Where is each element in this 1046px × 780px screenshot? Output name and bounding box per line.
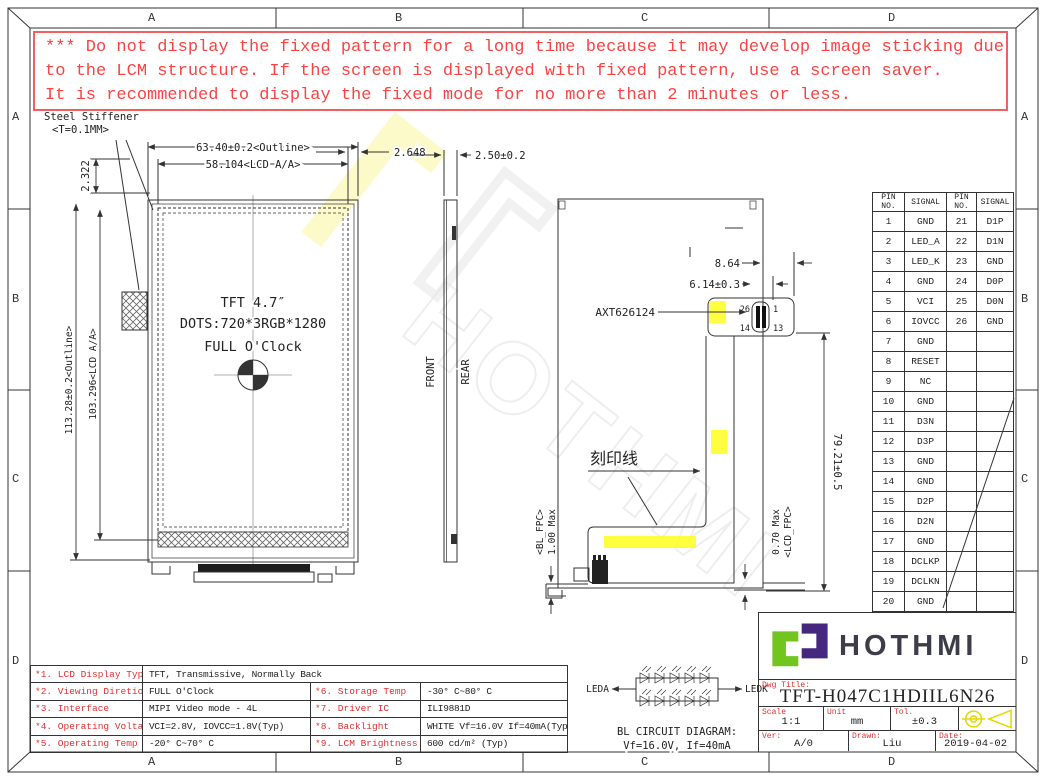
signal-cell: [977, 392, 1014, 412]
pin-no-cell: 15: [873, 492, 905, 512]
led-icon: [685, 666, 696, 683]
grid-label-col-top: A: [148, 11, 155, 25]
signal-cell: [977, 552, 1014, 572]
front-side-label: FRONT: [425, 356, 437, 388]
bl-caption-2: Vf=16.0V, If=40mA: [623, 740, 731, 752]
title-block: HOTHMI Dwg Title: TFT-H047C1HDIIL6N26 Sc…: [758, 612, 1016, 752]
led-icon: [700, 666, 711, 683]
signal-cell: LED_K: [905, 252, 947, 272]
fpc-highlight-mid: [711, 430, 727, 454]
pin-no-cell: 22: [947, 232, 977, 252]
pin-no-cell: 26: [947, 312, 977, 332]
signal-cell: IOVCC: [905, 312, 947, 332]
dim-border-width: 2.648: [394, 147, 426, 159]
scale-row: Scale 1:1 Unit mm Tol. ±0.3: [759, 706, 1016, 730]
spec-value: MIPI Video mode - 4L: [143, 701, 311, 718]
pin-table-header: PIN NO. SIGNAL PIN NO. SIGNAL: [873, 193, 1014, 212]
signal-cell: D1P: [977, 212, 1014, 232]
pin-26-label: 26: [740, 305, 750, 315]
spec-value: WHITE Vf=16.0V If=40mA(Typ): [421, 718, 568, 735]
pin-13-label: 13: [773, 324, 783, 334]
grid-label-row-left: D: [12, 654, 19, 668]
hothmi-logo-icon: [769, 620, 831, 672]
datasheet-page: HOTHMI Steel Stiffener <T=0.1MM> TFT 4: [0, 0, 1046, 780]
spec-row: *2. Viewing DiretionFULL O'Clock*6. Stor…: [31, 683, 568, 700]
pin-table-row: 10GND: [873, 392, 1014, 412]
warning-line: It is recommended to display the fixed m…: [45, 84, 1006, 108]
drawn-label: Drawn:: [852, 732, 881, 741]
bl-caption-1: BL CIRCUIT DIAGRAM:: [617, 726, 737, 738]
pin-table-row: 6IOVCC26GND: [873, 312, 1014, 332]
signal-cell: D2P: [905, 492, 947, 512]
panel-size-text: TFT 4.7″: [220, 295, 285, 311]
led-icon: [655, 689, 666, 706]
pin-table-row: 17GND: [873, 532, 1014, 552]
signal-cell: [977, 452, 1014, 472]
pin-no-cell: 11: [873, 412, 905, 432]
pin-table-row: 9NC: [873, 372, 1014, 392]
signal-cell: GND: [905, 532, 947, 552]
spec-row: *4. Operating VoltageVCI=2.8V, IOVCC=1.8…: [31, 718, 568, 735]
pin-assignment-table: PIN NO. SIGNAL PIN NO. SIGNAL 1GND21D1P2…: [872, 192, 1014, 612]
spec-table: *1. LCD Display TypeTFT, Transmissive, N…: [30, 665, 568, 753]
pin-no-cell: [947, 512, 977, 532]
led-icon: [700, 689, 711, 706]
tolerance-cell: Tol. ±0.3: [891, 707, 959, 730]
grid-label-row-right: C: [1021, 472, 1028, 486]
pin-table-row: 3LED_K23GND: [873, 252, 1014, 272]
pin-14-label: 14: [740, 324, 750, 334]
signal-cell: GND: [905, 472, 947, 492]
signal-header: SIGNAL: [905, 193, 947, 212]
pin-no-cell: 7: [873, 332, 905, 352]
pin-no-cell: [947, 392, 977, 412]
signal-cell: [977, 492, 1014, 512]
pin-table-row: 7GND: [873, 332, 1014, 352]
signal-cell: DCLKP: [905, 552, 947, 572]
bl-fpc-thickness: 1.00 Max: [547, 509, 558, 555]
dim-outline-height: 113.28±0.2<Outline>: [64, 325, 75, 434]
connector-part-number: AXT626124: [595, 306, 655, 319]
spec-value: -20° C~70° C: [143, 736, 311, 753]
signal-cell: GND: [977, 252, 1014, 272]
pin-no-cell: [947, 552, 977, 572]
spec-label: *6. Storage Temp: [311, 683, 421, 700]
spec-value: VCI=2.8V, IOVCC=1.8V(Typ): [143, 718, 311, 735]
signal-cell: D1N: [977, 232, 1014, 252]
signal-cell: D2N: [905, 512, 947, 532]
signal-cell: [977, 412, 1014, 432]
pin-no-cell: [947, 352, 977, 372]
signal-cell: D0P: [977, 272, 1014, 292]
date-label: Date:: [939, 732, 963, 741]
led-icon: [685, 689, 696, 706]
pin-no-cell: [947, 572, 977, 592]
pin-no-cell: 12: [873, 432, 905, 452]
stiffener-label: Steel Stiffener: [44, 111, 139, 123]
bl-fpc-label: <BL_FPC>: [535, 509, 546, 555]
grid-label-row-left: A: [12, 110, 19, 124]
pin-no-cell: 3: [873, 252, 905, 272]
signal-cell: DCLKN: [905, 572, 947, 592]
spec-value: FULL O'Clock: [143, 683, 311, 700]
pin-no-cell: 13: [873, 452, 905, 472]
pin-table-row: 13GND: [873, 452, 1014, 472]
signal-cell: GND: [977, 312, 1014, 332]
dim-fpc-length: 79.21±0.5: [831, 434, 843, 491]
pin-no-cell: 1: [873, 212, 905, 232]
pin-no-header: PIN NO.: [947, 193, 977, 212]
pin-no-cell: 23: [947, 252, 977, 272]
signal-cell: [977, 352, 1014, 372]
panel-dots-text: DOTS:720*3RGB*1280: [180, 316, 326, 332]
pin-table-row: 19DCLKN: [873, 572, 1014, 592]
spec-label: *9. LCM Brightness: [311, 736, 421, 753]
dim-active-width: 58.104<LCD A/A>: [206, 159, 301, 171]
pin-table-row: 4GND24D0P: [873, 272, 1014, 292]
unit-label: Unit: [827, 708, 846, 717]
stiffener-thickness: <T=0.1MM>: [52, 124, 109, 136]
signal-cell: [977, 592, 1014, 612]
grid-label-col-top: B: [395, 11, 402, 25]
pin-no-cell: 2: [873, 232, 905, 252]
dim-active-height: 103.296<LCD A/A>: [88, 328, 99, 420]
pin-no-header: PIN NO.: [873, 193, 905, 212]
projection-symbol-icon: [961, 708, 1013, 730]
tolerance-label: Tol.: [894, 708, 913, 717]
unit-cell: Unit mm: [824, 707, 891, 730]
projection-cell: [959, 707, 1014, 730]
brand-name: HOTHMI: [839, 630, 977, 663]
pin-no-cell: [947, 432, 977, 452]
led-icon: [670, 689, 681, 706]
pin-no-cell: 5: [873, 292, 905, 312]
spec-label: *3. Interface: [31, 701, 143, 718]
scale-cell: Scale 1:1: [759, 707, 824, 730]
pin-no-cell: [947, 592, 977, 612]
warning-line: *** Do not display the fixed pattern for…: [45, 36, 1006, 60]
spec-value: ILI9881D: [421, 701, 568, 718]
pin-no-cell: 18: [873, 552, 905, 572]
pin-table-row: 12D3P: [873, 432, 1014, 452]
pin-no-cell: 14: [873, 472, 905, 492]
version-cell: Ver: A/0: [759, 731, 849, 751]
grid-label-row-left: B: [12, 292, 19, 306]
grid-label-row-left: C: [12, 472, 19, 486]
signal-cell: VCI: [905, 292, 947, 312]
led-icon: [640, 666, 651, 683]
spec-label: *1. LCD Display Type: [31, 666, 143, 683]
scale-label: Scale: [762, 708, 786, 717]
drawing-title-row: Dwg Title: TFT-H047C1HDIIL6N26: [759, 679, 1016, 706]
lcd-fpc-thickness: 0.70 Max: [771, 509, 782, 555]
spec-row: *5. Operating Temp-20° C~70° C*9. LCM Br…: [31, 736, 568, 753]
signal-cell: GND: [905, 452, 947, 472]
grid-label-col-bottom: D: [888, 755, 895, 769]
pin-table-row: 2LED_A22D1N: [873, 232, 1014, 252]
steel-stiffener: [122, 292, 147, 330]
fpc-highlight-band: [604, 536, 696, 548]
grid-label-col-top: C: [641, 11, 648, 25]
signal-cell: GND: [905, 392, 947, 412]
signal-cell: [977, 372, 1014, 392]
date-cell: Date: 2019-04-02: [936, 731, 1015, 751]
signal-cell: [977, 512, 1014, 532]
led-icon: [655, 666, 666, 683]
spec-label: *8. Backlight: [311, 718, 421, 735]
pin-table-row: 5VCI25D0N: [873, 292, 1014, 312]
grid-label-row-right: B: [1021, 292, 1028, 306]
pin-no-cell: 8: [873, 352, 905, 372]
version-label: Ver:: [762, 732, 781, 741]
pin-no-cell: 17: [873, 532, 905, 552]
grid-label-col-bottom: B: [395, 755, 402, 769]
grid-label-col-bottom: A: [148, 755, 155, 769]
pin-no-cell: [947, 372, 977, 392]
pin-table-row: 14GND: [873, 472, 1014, 492]
pin-no-cell: [947, 452, 977, 472]
dim-connector-width: 6.14±0.3: [689, 279, 740, 291]
signal-cell: GND: [905, 272, 947, 292]
spec-value: -30° C~80° C: [421, 683, 568, 700]
spec-label: *2. Viewing Diretion: [31, 683, 143, 700]
signal-cell: [977, 332, 1014, 352]
pin-no-cell: 20: [873, 592, 905, 612]
pin-no-cell: 16: [873, 512, 905, 532]
warning-box: *** Do not display the fixed pattern for…: [33, 31, 1008, 111]
pin-no-cell: [947, 472, 977, 492]
bl-circuit-diagram: LEDA LEDK BL CIRCUIT DIAGRAM: Vf=16.0V, …: [586, 666, 768, 752]
spec-label: *5. Operating Temp: [31, 736, 143, 753]
pin-table-row: 16D2N: [873, 512, 1014, 532]
grid-label-row-right: A: [1021, 110, 1028, 124]
signal-cell: RESET: [905, 352, 947, 372]
pin-table-row: 15D2P: [873, 492, 1014, 512]
leda-label: LEDA: [586, 684, 609, 695]
pin-no-cell: 4: [873, 272, 905, 292]
dim-top-gap: 2.322: [80, 160, 92, 192]
led-icon: [670, 666, 681, 683]
grid-label-col-top: D: [888, 11, 895, 25]
signal-cell: GND: [905, 592, 947, 612]
signal-header: SIGNAL: [977, 193, 1014, 212]
version-row: Ver: A/0 Drawn: Liu Date: 2019-04-02: [759, 730, 1016, 751]
led-symbols: [640, 666, 711, 706]
spec-label: *7. Driver IC: [311, 701, 421, 718]
signal-cell: D3P: [905, 432, 947, 452]
signal-cell: [977, 572, 1014, 592]
spec-row: *1. LCD Display TypeTFT, Transmissive, N…: [31, 666, 568, 683]
signal-cell: D3N: [905, 412, 947, 432]
pin-table-row: 1GND21D1P: [873, 212, 1014, 232]
pin-no-cell: 21: [947, 212, 977, 232]
grid-label-col-bottom: C: [641, 755, 648, 769]
spec-value: 600 cd/m² (Typ): [421, 736, 568, 753]
spec-row: *3. InterfaceMIPI Video mode - 4L*7. Dri…: [31, 701, 568, 718]
dim-tab-width: 8.64: [715, 258, 740, 270]
signal-cell: D0N: [977, 292, 1014, 312]
signal-cell: GND: [905, 332, 947, 352]
pin-table-row: 11D3N: [873, 412, 1014, 432]
pin-no-cell: 6: [873, 312, 905, 332]
signal-cell: GND: [905, 212, 947, 232]
warning-line: to the LCM structure. If the screen is d…: [45, 60, 1006, 84]
engraving-line-label: 刻印线: [590, 449, 638, 468]
lcd-fpc-label: <LCD_FPC>: [783, 506, 794, 558]
spec-value: TFT, Transmissive, Normally Back: [143, 666, 568, 683]
pin-no-cell: [947, 412, 977, 432]
pin-table-row: 20GND: [873, 592, 1014, 612]
pin-table-row: 18DCLKP: [873, 552, 1014, 572]
pin-table-row: 8RESET: [873, 352, 1014, 372]
grid-label-row-right: D: [1021, 654, 1028, 668]
logo: HOTHMI: [759, 613, 1016, 679]
spec-label: *4. Operating Voltage: [31, 718, 143, 735]
pin-no-cell: [947, 532, 977, 552]
rear-side-label: REAR: [460, 359, 472, 385]
panel-viewing-text: FULL O'Clock: [204, 339, 302, 355]
pin-no-cell: [947, 492, 977, 512]
pin-no-cell: [947, 332, 977, 352]
signal-cell: LED_A: [905, 232, 947, 252]
dim-thickness: 2.50±0.2: [475, 150, 526, 162]
signal-cell: [977, 532, 1014, 552]
signal-cell: NC: [905, 372, 947, 392]
pin-no-cell: 24: [947, 272, 977, 292]
pin-no-cell: 19: [873, 572, 905, 592]
dwg-title-label: Dwg Title:: [762, 681, 810, 690]
pin-1-label: 1: [773, 305, 778, 315]
pin-no-cell: 9: [873, 372, 905, 392]
pin-no-cell: 25: [947, 292, 977, 312]
drawn-cell: Drawn: Liu: [849, 731, 936, 751]
led-icon: [640, 689, 651, 706]
signal-cell: [977, 472, 1014, 492]
signal-cell: [977, 432, 1014, 452]
dim-outline-width: 63.40±0.2<Outline>: [196, 142, 310, 154]
pin-no-cell: 10: [873, 392, 905, 412]
